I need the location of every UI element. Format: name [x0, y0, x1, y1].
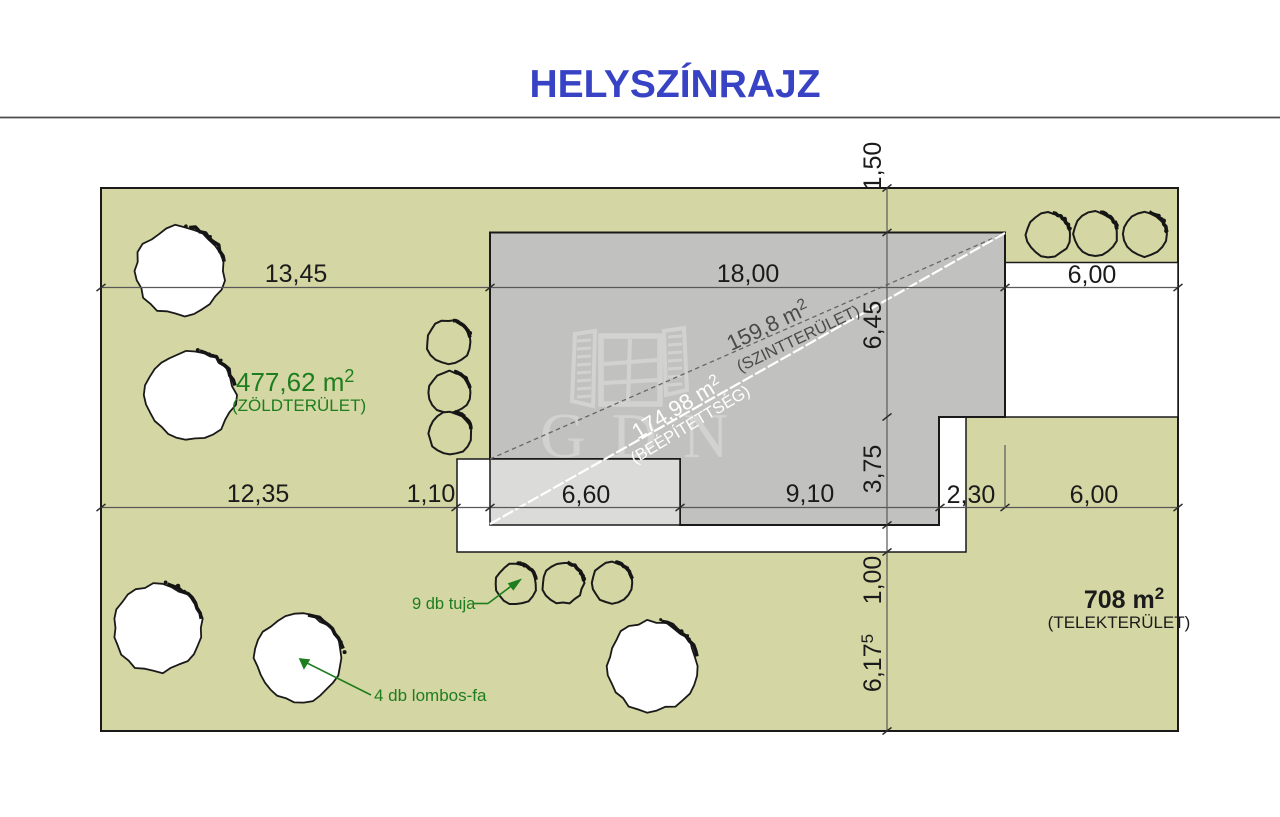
svg-text:HELYSZÍNRAJZ: HELYSZÍNRAJZ [529, 62, 820, 106]
svg-text:1,00: 1,00 [859, 556, 887, 605]
svg-text:6,00: 6,00 [1068, 261, 1117, 289]
svg-text:6,60: 6,60 [562, 481, 611, 509]
svg-text:9 db tuja: 9 db tuja [412, 595, 476, 613]
svg-text:6,00: 6,00 [1070, 481, 1119, 509]
svg-text:477,62 m2: 477,62 m2 [236, 366, 354, 397]
svg-text:708 m2: 708 m2 [1084, 584, 1164, 614]
svg-text:1,50: 1,50 [859, 142, 887, 191]
svg-text:4 db lombos-fa: 4 db lombos-fa [374, 686, 487, 705]
svg-text:13,45: 13,45 [265, 260, 328, 288]
svg-text:6,45: 6,45 [859, 301, 887, 350]
svg-text:9,10: 9,10 [786, 480, 835, 508]
svg-text:1,10: 1,10 [407, 480, 456, 508]
svg-text:(ZÖLDTERÜLET): (ZÖLDTERÜLET) [232, 396, 366, 415]
svg-text:18,00: 18,00 [717, 260, 780, 288]
svg-text:2,30: 2,30 [947, 481, 996, 509]
svg-text:3,75: 3,75 [859, 445, 887, 494]
svg-text:12,35: 12,35 [227, 480, 290, 508]
svg-text:(TELEKTERÜLET): (TELEKTERÜLET) [1048, 613, 1191, 632]
